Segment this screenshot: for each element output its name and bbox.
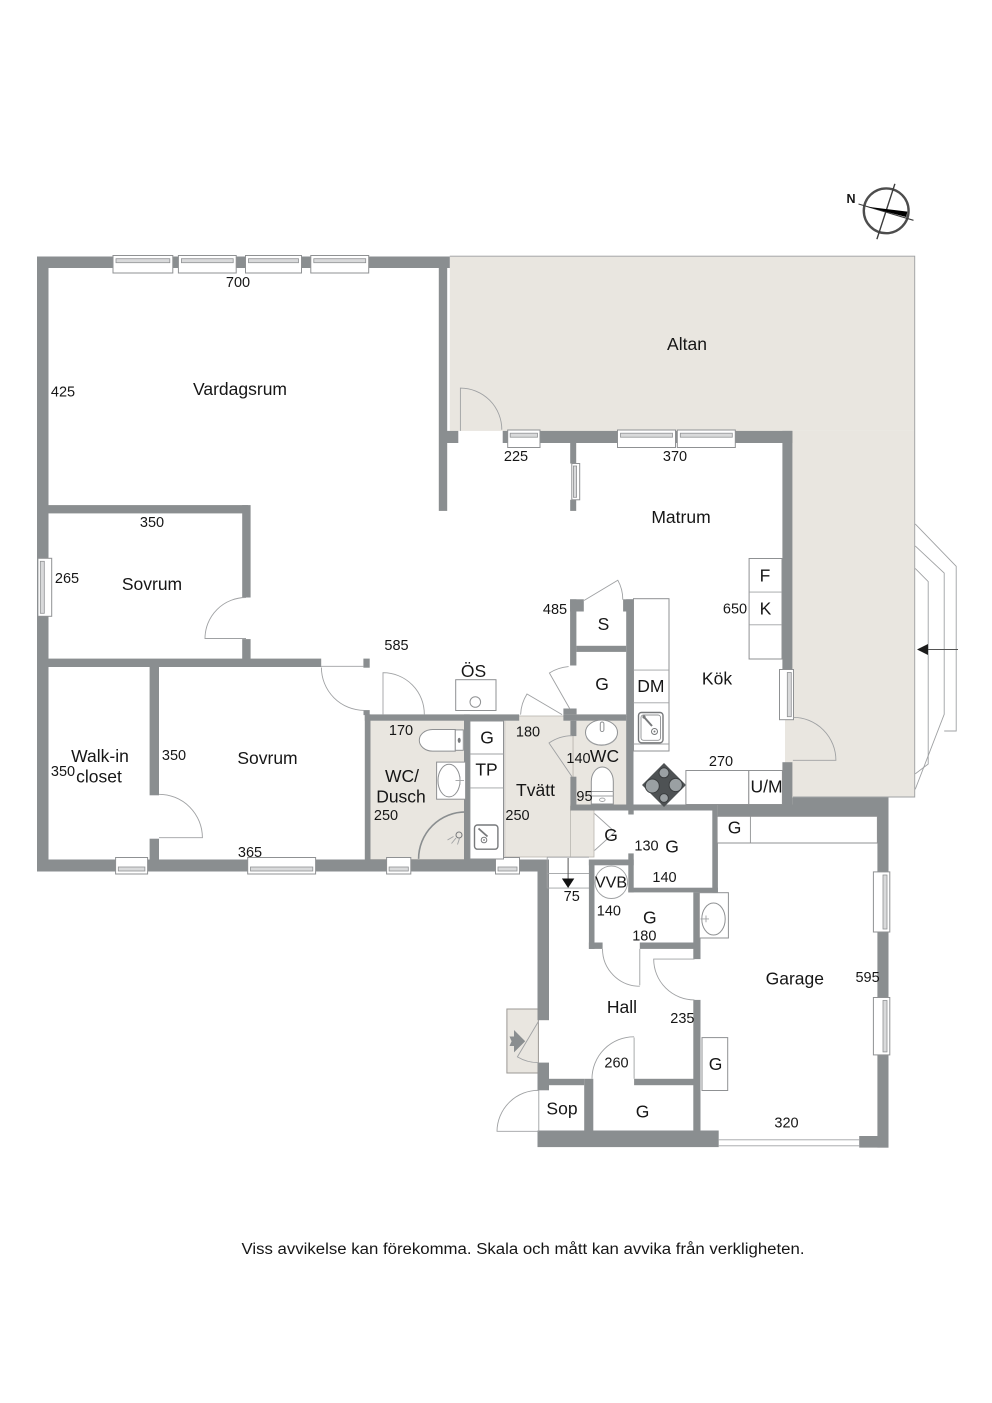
svg-text:G: G <box>636 1102 650 1122</box>
svg-text:Walk-in: Walk-in <box>71 746 129 766</box>
svg-text:Viss avvikelse kan förekomma.: Viss avvikelse kan förekomma. Skala och … <box>242 1241 805 1258</box>
svg-text:250: 250 <box>374 808 398 824</box>
svg-text:265: 265 <box>55 571 79 587</box>
svg-text:130: 130 <box>634 839 658 855</box>
svg-text:Garage: Garage <box>766 969 824 989</box>
svg-text:Kök: Kök <box>702 669 732 689</box>
svg-text:closet: closet <box>76 767 122 787</box>
svg-text:Tvätt: Tvätt <box>516 780 555 800</box>
svg-text:320: 320 <box>774 1116 798 1132</box>
svg-text:G: G <box>595 674 609 694</box>
svg-text:350: 350 <box>51 764 75 780</box>
svg-text:140: 140 <box>597 904 621 920</box>
svg-text:G: G <box>480 728 494 748</box>
svg-text:95: 95 <box>576 789 592 805</box>
svg-text:140: 140 <box>652 870 676 886</box>
svg-text:Sop: Sop <box>546 1099 577 1119</box>
svg-text:Dusch: Dusch <box>376 787 426 807</box>
svg-text:485: 485 <box>543 602 567 618</box>
svg-text:370: 370 <box>663 449 687 465</box>
svg-text:250: 250 <box>505 808 529 824</box>
svg-text:ÖS: ÖS <box>461 661 486 681</box>
svg-text:270: 270 <box>709 754 733 770</box>
svg-text:235: 235 <box>670 1011 694 1027</box>
svg-text:Vardagsrum: Vardagsrum <box>193 379 287 399</box>
svg-text:F: F <box>760 566 771 586</box>
svg-text:Altan: Altan <box>667 334 707 354</box>
svg-text:G: G <box>643 908 657 928</box>
svg-text:N: N <box>846 192 855 206</box>
svg-text:350: 350 <box>162 748 186 764</box>
svg-text:75: 75 <box>564 889 580 905</box>
svg-text:WC/: WC/ <box>385 766 419 786</box>
svg-text:G: G <box>728 818 742 838</box>
svg-text:650: 650 <box>723 602 747 618</box>
svg-text:Sovrum: Sovrum <box>122 574 182 594</box>
svg-text:G: G <box>665 837 679 857</box>
svg-text:TP: TP <box>475 760 497 780</box>
svg-text:U/M: U/M <box>750 777 782 797</box>
svg-text:425: 425 <box>51 385 75 401</box>
svg-text:140: 140 <box>566 751 590 767</box>
svg-text:365: 365 <box>238 845 262 861</box>
svg-text:DM: DM <box>637 676 664 696</box>
svg-text:G: G <box>709 1054 723 1074</box>
svg-text:G: G <box>604 825 618 845</box>
svg-text:Hall: Hall <box>607 997 637 1017</box>
svg-text:700: 700 <box>226 275 250 291</box>
svg-text:170: 170 <box>389 723 413 739</box>
svg-text:WC: WC <box>590 746 619 766</box>
svg-text:Matrum: Matrum <box>651 507 710 527</box>
svg-text:225: 225 <box>504 449 528 465</box>
svg-text:S: S <box>598 614 610 634</box>
svg-text:K: K <box>760 599 772 619</box>
svg-text:260: 260 <box>604 1056 628 1072</box>
svg-text:VVB: VVB <box>595 875 627 892</box>
svg-text:350: 350 <box>140 515 164 531</box>
svg-text:Sovrum: Sovrum <box>237 748 297 768</box>
svg-text:585: 585 <box>384 638 408 654</box>
svg-text:595: 595 <box>855 970 879 986</box>
svg-text:180: 180 <box>632 929 656 945</box>
svg-text:180: 180 <box>516 725 540 741</box>
